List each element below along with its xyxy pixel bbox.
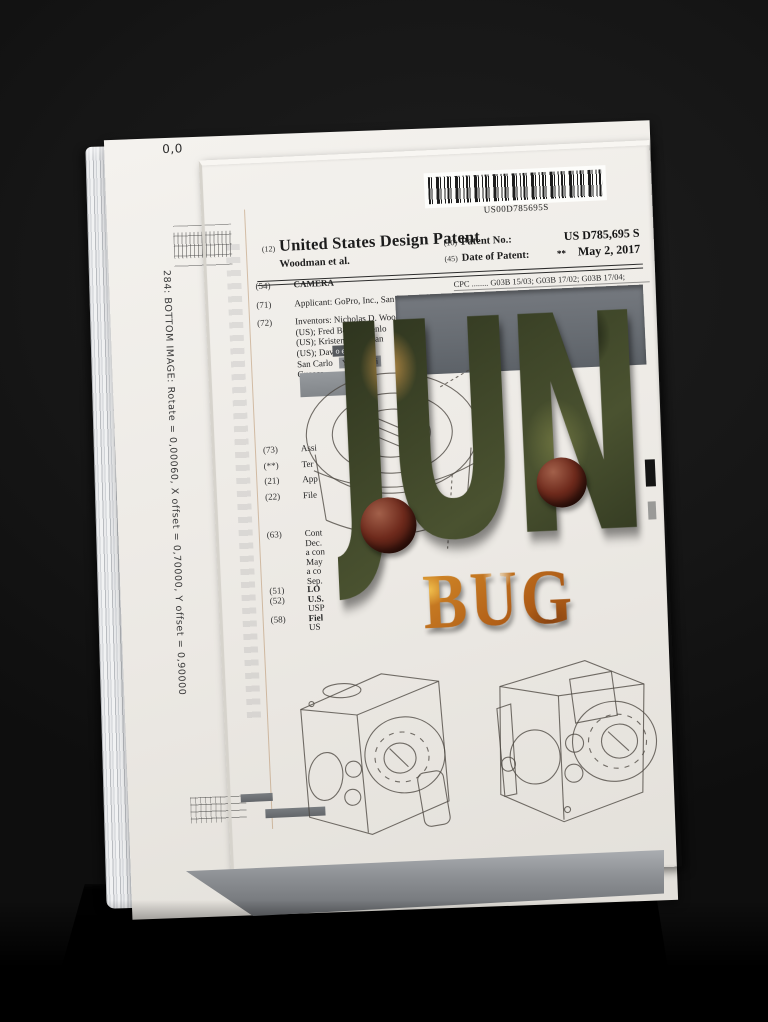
plotter-annotation: 284: BOTTOM IMAGE: Rotate = 0,00060, X o… [161,270,190,770]
field-code: (10) [443,236,457,251]
field-code: (72) [257,318,287,329]
field-text: US [309,623,321,633]
field-code: (**) [263,460,293,471]
field-code [271,624,301,635]
field-code: (73) [263,445,293,456]
camera-figure-right [464,639,666,834]
field-code: (54) [255,281,285,292]
page-edge-ink-mark [648,501,657,519]
carved-patent-block: US00D785695S (12) United States Design P… [199,140,683,887]
plotter-origin-label: 0,0 [162,141,183,156]
bottom-shadow-fade [0,900,768,1022]
kind-code: (12) [262,244,276,254]
patent-no-label: Patent No.: [461,233,512,249]
field-code: (71) [256,299,286,310]
photo-carved-patent-book: 0,0 284: BOTTOM IMAGE: Rotate = 0,00060,… [0,0,768,1022]
camera-figure-left [282,652,468,848]
field-code: (22) [265,491,295,502]
patent-no-value: US D785,695 S [564,226,640,243]
page-edge-ink-mark [645,459,656,486]
field-code: (63) [267,530,297,541]
barcode [428,169,603,204]
carve-terrace-edge [241,793,273,802]
field-code: (21) [264,476,294,487]
